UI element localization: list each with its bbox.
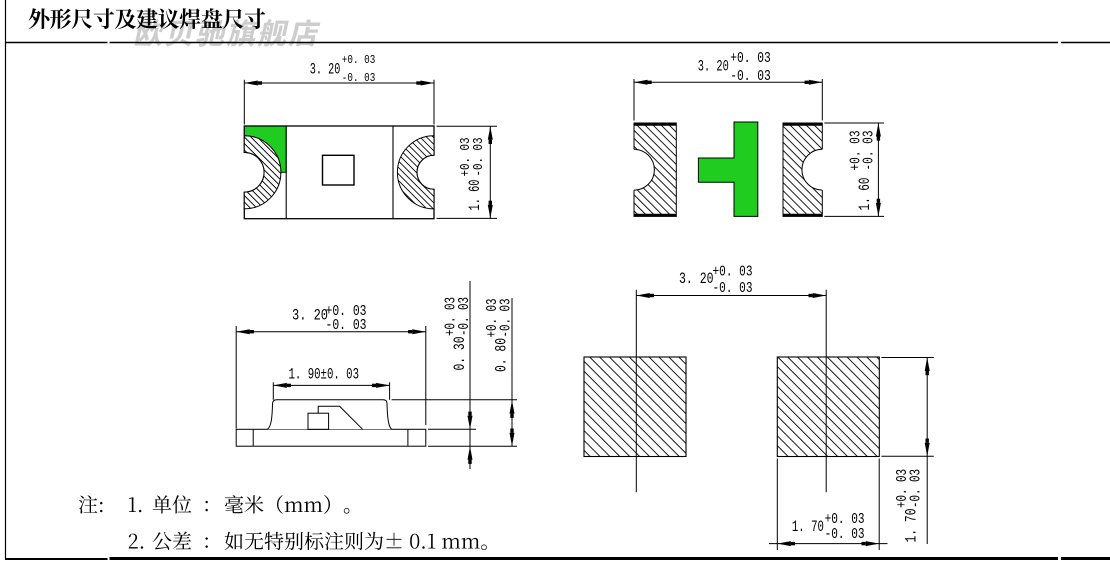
svg-text:1. 60: 1. 60	[466, 180, 484, 211]
svg-text:-0. 03: -0. 03	[326, 318, 367, 334]
svg-text:1. 90±0. 03: 1. 90±0. 03	[289, 365, 360, 383]
svg-text:1. 70: 1. 70	[792, 518, 824, 536]
svg-text:-0. 03: -0. 03	[730, 69, 771, 85]
svg-text:3. 20: 3. 20	[698, 57, 729, 75]
svg-text:+0. 03: +0. 03	[713, 265, 753, 281]
svg-text:3. 20: 3. 20	[310, 60, 341, 78]
svg-text:0. 30: 0. 30	[451, 337, 469, 371]
svg-text:+0. 03: +0. 03	[730, 51, 771, 67]
svg-text:+0. 03: +0. 03	[342, 54, 376, 67]
svg-text:-0. 03: -0. 03	[457, 297, 473, 336]
svg-text:+0. 03: +0. 03	[825, 512, 865, 528]
svg-text:-0. 03: -0. 03	[498, 299, 514, 338]
svg-text:-0. 03: -0. 03	[342, 72, 376, 85]
svg-text:-0. 03: -0. 03	[471, 138, 487, 177]
svg-text:-0. 03: -0. 03	[908, 469, 924, 508]
svg-text:0. 80: 0. 80	[493, 338, 511, 372]
svg-text:1. 60: 1. 60	[856, 178, 874, 211]
svg-text:-0. 03: -0. 03	[825, 527, 865, 543]
svg-text:-0. 03: -0. 03	[862, 131, 878, 171]
svg-text:-0. 03: -0. 03	[713, 281, 753, 297]
svg-text:3. 20: 3. 20	[679, 270, 714, 288]
svg-text:3. 20: 3. 20	[292, 307, 328, 325]
svg-text:1. 70: 1. 70	[903, 509, 921, 543]
